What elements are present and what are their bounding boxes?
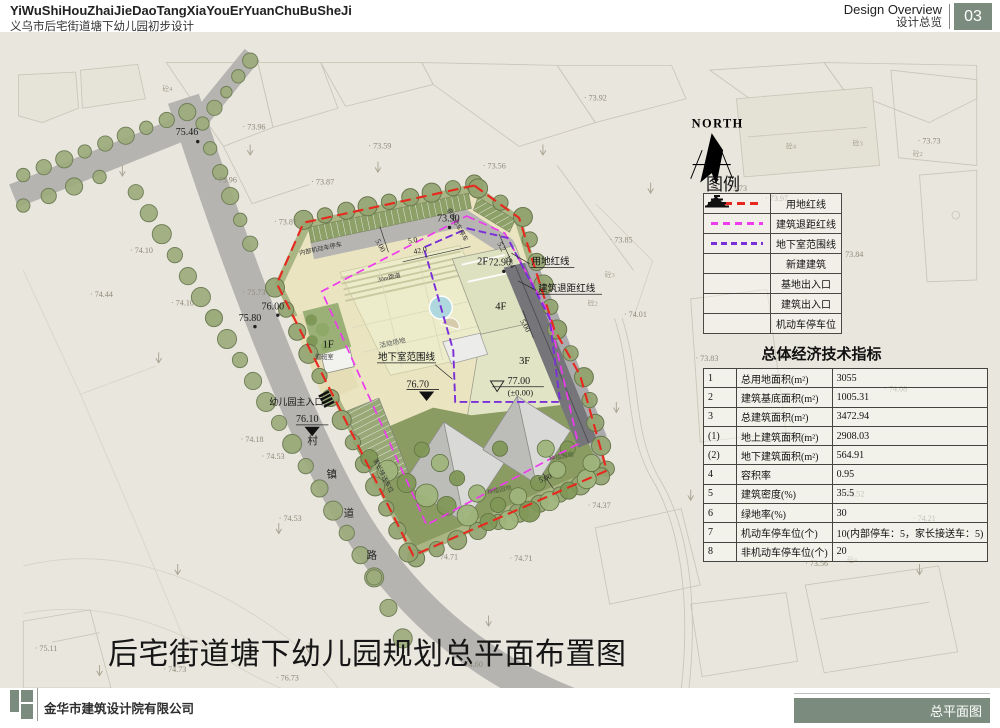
- plan-label: 值班室: [315, 353, 334, 361]
- plan-label: 3F: [519, 356, 530, 367]
- tree: [222, 187, 239, 204]
- parcel-code: 砼3: [605, 270, 616, 279]
- indicator-cell: 35.5: [832, 484, 988, 503]
- plan-label: 1F: [323, 340, 334, 351]
- tree: [592, 436, 611, 455]
- footer-divider: [37, 688, 38, 721]
- indicators-title: 总体经济技术指标: [703, 343, 940, 364]
- tree: [381, 194, 396, 209]
- spot-elevation: · 74.71: [435, 552, 458, 561]
- plan-label: 建筑退距红线: [538, 282, 596, 294]
- plan-label: 村: [307, 434, 318, 447]
- indicator-cell: 非机动车停车位(个): [737, 542, 833, 561]
- spot-elevation: · 73.87: [311, 178, 334, 187]
- spot-elevation: · 73.96: [243, 122, 266, 131]
- legend-label: 基地出入口: [771, 274, 841, 293]
- tree: [582, 392, 597, 407]
- tree: [243, 53, 258, 68]
- tree: [563, 346, 578, 361]
- indicator-row: 6绿地率(%)30: [704, 504, 988, 523]
- indicator-cell: 564.91: [832, 446, 988, 465]
- legend-label: 地下室范围线: [771, 234, 841, 253]
- indicator-row: (2)地下建筑面积(m²)564.91: [704, 446, 988, 465]
- indicator-cell: 3055: [832, 369, 988, 388]
- tree: [128, 185, 143, 200]
- header-divider: [949, 4, 950, 29]
- plan-label: 76.70: [407, 380, 430, 391]
- spot-elevation: · 73.59: [368, 141, 391, 150]
- purple-dashed-icon: [704, 234, 771, 253]
- legend-row: 地下室范围线: [704, 233, 841, 253]
- indicator-cell: 10(内部停车：5，家长接送车：5): [832, 523, 988, 542]
- tree: [179, 104, 196, 121]
- spot-elevation: · 74.53: [262, 452, 285, 461]
- tree: [317, 208, 332, 223]
- tree: [583, 454, 600, 471]
- tree: [98, 136, 113, 151]
- parcel-code: 砼4: [162, 84, 173, 93]
- plan-label: 4F: [495, 301, 506, 312]
- tree: [437, 496, 456, 515]
- tree: [36, 160, 51, 175]
- tree: [207, 100, 222, 115]
- legend: 用地红线建筑退距红线地下室范围线新建建筑基地出入口建筑出入口机动车停车位: [703, 193, 842, 334]
- tree: [510, 488, 527, 505]
- indicator-cell: 2: [704, 388, 737, 407]
- tree: [17, 199, 30, 212]
- tree: [283, 434, 302, 453]
- tree: [41, 188, 56, 203]
- tree: [324, 501, 343, 520]
- tree: [152, 225, 171, 244]
- flow-arrow: [175, 564, 181, 574]
- plan-label: 道: [344, 506, 355, 519]
- spot-elevation: · 74.10: [130, 246, 153, 255]
- spot-elevation: · 75.11: [35, 644, 58, 653]
- tree: [232, 70, 245, 83]
- tree: [380, 599, 397, 616]
- indicator-cell: (1): [704, 426, 737, 445]
- spot-elevation: · 74.10: [171, 299, 194, 308]
- company-logo: [21, 704, 33, 719]
- indicator-cell: 机动车停车位(个): [737, 523, 833, 542]
- section-title: Design Overview 设计总览: [844, 2, 942, 30]
- spot-elevation: · 74.44: [90, 290, 113, 299]
- spot-elevation: · 75.73: [243, 288, 266, 297]
- tree: [457, 505, 478, 526]
- flow-arrow: [688, 490, 694, 500]
- indicators-table: 1总用地面积(m²)30552建筑基底面积(m²)1005.313总建筑面积(m…: [703, 368, 988, 562]
- tree: [339, 525, 354, 540]
- tree: [414, 442, 429, 457]
- page-number-badge: 03: [954, 3, 992, 30]
- flow-arrow: [156, 352, 162, 362]
- section-title-cn: 设计总览: [844, 17, 942, 30]
- indicator-cell: 20: [832, 542, 988, 561]
- parcel-code: 砼2: [913, 149, 923, 158]
- indicator-cell: 总用地面积(m²): [737, 369, 833, 388]
- indicator-cell: (2): [704, 446, 737, 465]
- legend-row: 基地出入口: [704, 273, 841, 293]
- indicator-cell: 地下建筑面积(m²): [737, 446, 833, 465]
- plan-label: 75.46: [176, 127, 199, 138]
- tree: [379, 501, 394, 516]
- indicator-cell: 绿地率(%): [737, 504, 833, 523]
- tree: [415, 484, 438, 507]
- flow-arrow: [120, 165, 126, 175]
- legend-row: 建筑退距红线: [704, 213, 841, 233]
- indicator-row: (1)地上建筑面积(m²)2908.03: [704, 426, 988, 445]
- tree: [367, 570, 382, 585]
- tree: [271, 415, 286, 430]
- indicator-cell: 建筑密度(%): [737, 484, 833, 503]
- spot-elevation: · 74.53: [279, 514, 302, 523]
- drawing-title: 后宅街道塘下幼儿园规划总平面布置图: [108, 629, 627, 673]
- sheet-name-bar: 总平面图: [794, 698, 990, 723]
- tree: [203, 142, 216, 155]
- legend-label: 机动车停车位: [771, 314, 841, 333]
- spot-elevation: · 73.92: [584, 94, 607, 103]
- plan-label: 镇: [326, 467, 337, 480]
- tree: [65, 178, 82, 195]
- tree: [221, 86, 232, 97]
- building-entrance-icon: [704, 294, 771, 313]
- indicator-row: 1总用地面积(m²)3055: [704, 369, 988, 388]
- parcel-code: 砼2: [588, 299, 598, 308]
- indicator-cell: 30: [832, 504, 988, 523]
- spot-elevation: · 73.56: [483, 161, 506, 170]
- project-title-pinyin: YiWuShiHouZhaiJieDaoTangXiaYouErYuanChuB…: [10, 3, 352, 18]
- plan-label: 幼儿园主入口: [269, 396, 323, 407]
- magenta-dashed-icon: [704, 214, 771, 233]
- legend-title: 图例: [706, 170, 740, 195]
- tree: [445, 181, 460, 196]
- tree: [140, 121, 153, 134]
- indicator-row: 8非机动车停车位(个)20: [704, 542, 988, 561]
- plan-label: 路: [367, 548, 378, 561]
- tree: [78, 145, 91, 158]
- indicator-cell: 3: [704, 407, 737, 426]
- indicator-row: 7机动车停车位(个)10(内部停车：5，家长接送车：5): [704, 523, 988, 542]
- plan-label: 75.80: [239, 313, 262, 324]
- flow-arrow: [540, 145, 546, 155]
- tree: [431, 454, 448, 471]
- tree: [167, 247, 182, 262]
- flow-arrow: [276, 523, 282, 533]
- spot-elevation: · 74.37: [588, 501, 611, 510]
- building-icon: [704, 254, 771, 273]
- plan-label: 77.00: [508, 376, 530, 387]
- parcel-code: 砼4: [786, 141, 797, 150]
- legend-label: 建筑退距红线: [771, 214, 841, 233]
- tree: [480, 514, 497, 531]
- indicator-row: 4容积率0.95: [704, 465, 988, 484]
- spot-elevation: · 73.73: [918, 137, 941, 146]
- spot-elevation: · 73.85: [610, 236, 633, 245]
- plan-label: 地下室范围线: [378, 351, 436, 363]
- spot-elevation: · 73.84: [840, 250, 863, 259]
- flow-arrow: [613, 402, 619, 412]
- indicator-cell: 1: [704, 369, 737, 388]
- tree: [217, 329, 236, 348]
- indicator-cell: 6: [704, 504, 737, 523]
- section-title-en: Design Overview: [844, 2, 942, 17]
- site-plan-area: NORTH 75.4676.0075.8073.9072.9077.00(±0.…: [0, 32, 1000, 688]
- tree: [159, 112, 174, 127]
- spot-elevation: · 74.18: [241, 435, 264, 444]
- spot-elevation: · 74.71: [510, 554, 533, 563]
- legend-label: 建筑出入口: [771, 294, 841, 313]
- tree: [56, 151, 73, 168]
- indicator-cell: 总建筑面积(m²): [737, 407, 833, 426]
- tree: [338, 202, 355, 219]
- indicator-cell: 地上建筑面积(m²): [737, 426, 833, 445]
- drawing-sheet: YiWuShiHouZhaiJieDaoTangXiaYouErYuanChuB…: [0, 0, 1000, 728]
- parcel-code: 砼3: [853, 138, 864, 147]
- indicator-row: 5建筑密度(%)35.5: [704, 484, 988, 503]
- indicator-cell: 8: [704, 542, 737, 561]
- tree: [234, 213, 247, 226]
- tree: [191, 288, 210, 307]
- tree: [140, 205, 157, 222]
- indicator-cell: 2908.03: [832, 426, 988, 445]
- plan-label: 用地红线: [531, 256, 570, 268]
- company-logo: [21, 690, 33, 702]
- flow-arrow: [247, 145, 253, 155]
- tree: [449, 471, 464, 486]
- indicator-cell: 0.95: [832, 465, 988, 484]
- tree: [17, 168, 30, 181]
- tree: [469, 485, 486, 502]
- tree: [540, 492, 559, 511]
- plan-label: 2F: [477, 257, 488, 268]
- tree: [298, 458, 313, 473]
- footer-rule: [794, 693, 990, 694]
- tree: [311, 480, 328, 497]
- plan-label: 76.10: [296, 414, 319, 425]
- tree: [232, 352, 247, 367]
- tree: [332, 411, 351, 430]
- tree: [397, 473, 416, 492]
- indicator-row: 2建筑基底面积(m²)1005.31: [704, 388, 988, 407]
- sheet-header: YiWuShiHouZhaiJieDaoTangXiaYouErYuanChuB…: [0, 0, 1000, 33]
- spot-elevation: · 73.87: [274, 218, 297, 227]
- legend-row: 机动车停车位: [704, 313, 841, 333]
- company-logo: [10, 690, 19, 712]
- plan-label: (±0.00): [508, 387, 534, 397]
- indicator-cell: 7: [704, 523, 737, 542]
- parking-icon: [704, 314, 771, 333]
- indicator-row: 3总建筑面积(m²)3472.94: [704, 407, 988, 426]
- plan-label: 76.00: [262, 301, 284, 312]
- flow-arrow: [486, 616, 492, 626]
- tree: [117, 127, 134, 144]
- indicator-cell: 5: [704, 484, 737, 503]
- legend-label: 用地红线: [771, 194, 841, 213]
- flow-arrow: [97, 665, 103, 675]
- indicator-cell: 1005.31: [832, 388, 988, 407]
- spot-elevation: · 76.73: [276, 673, 299, 682]
- legend-row: 建筑出入口: [704, 293, 841, 313]
- indicator-cell: 容积率: [737, 465, 833, 484]
- legend-row: 新建建筑: [704, 253, 841, 273]
- sheet-footer: 金华市建筑设计院有限公司 总平面图: [0, 688, 1000, 728]
- legend-label: 新建建筑: [771, 254, 841, 273]
- tree: [492, 441, 507, 456]
- north-label: NORTH: [692, 116, 744, 130]
- tree: [243, 236, 258, 251]
- company-name: 金华市建筑设计院有限公司: [44, 698, 194, 717]
- indicator-cell: 4: [704, 465, 737, 484]
- tree: [179, 268, 196, 285]
- site-entrance-icon: [704, 274, 771, 293]
- tree: [399, 543, 418, 562]
- flow-arrow: [375, 162, 381, 172]
- flow-arrow: [648, 183, 654, 193]
- indicator-cell: 建筑基底面积(m²): [737, 388, 833, 407]
- tree: [244, 372, 261, 389]
- indicator-cell: 3472.94: [832, 407, 988, 426]
- tree: [93, 170, 106, 183]
- tree: [490, 497, 505, 512]
- spot-elevation: · 73.96: [214, 176, 237, 185]
- tree: [205, 309, 222, 326]
- spot-elevation: · 74.01: [624, 310, 647, 319]
